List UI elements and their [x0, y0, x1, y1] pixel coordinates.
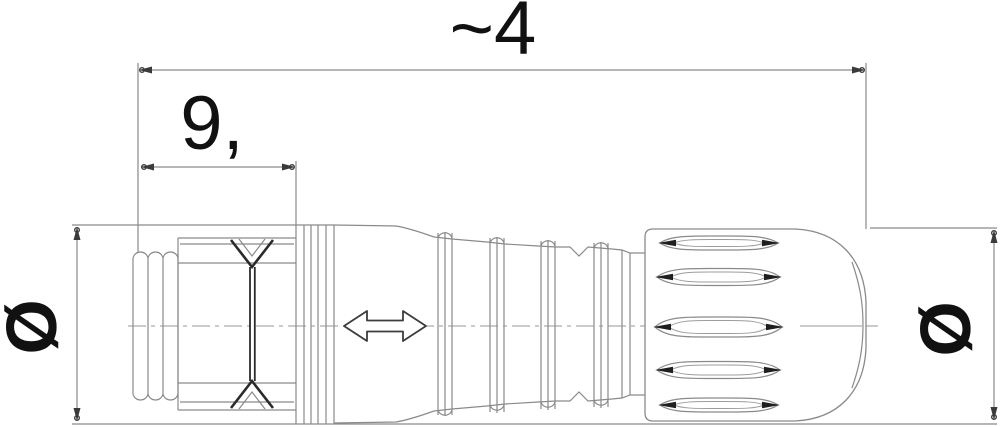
grip-slot	[658, 398, 780, 412]
dimension-overall-length: ~4	[138, 0, 866, 252]
grip-slot	[655, 269, 782, 286]
nut-split-line	[250, 267, 255, 381]
front-length-label: 9,	[180, 81, 243, 166]
diameter-symbol-left: Ø	[0, 299, 70, 354]
grip-slot	[653, 317, 784, 337]
double-arrow-marker	[344, 311, 426, 341]
technical-drawing-canvas: ~4 9, Ø Ø	[0, 0, 1000, 427]
flange-rings	[304, 225, 334, 424]
connector-body	[334, 225, 434, 423]
dimension-front-length: 9,	[141, 81, 296, 424]
overall-length-label: ~4	[450, 0, 537, 71]
coupling-nut	[178, 238, 296, 410]
cable-grip	[645, 229, 866, 421]
locking-v-groove-bottom	[231, 381, 273, 409]
grip-slot	[658, 236, 780, 250]
diameter-symbol-right: Ø	[905, 301, 984, 356]
grip-slot	[655, 362, 782, 379]
strain-relief-ribs	[434, 232, 645, 416]
dimension-diameter-right: Ø	[870, 228, 998, 420]
connector-technical-drawing: ~4 9, Ø Ø	[0, 0, 1000, 427]
